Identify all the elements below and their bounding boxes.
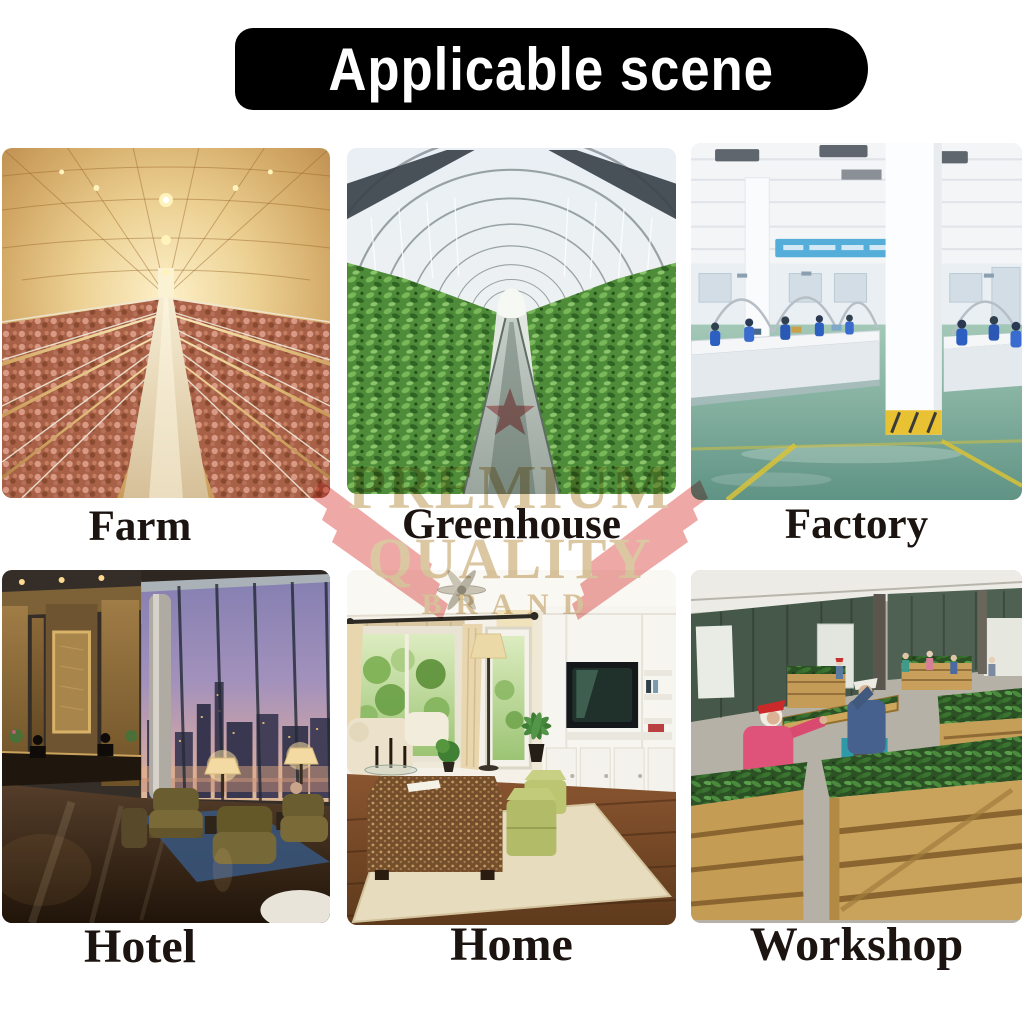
poultry-house-illustration: [2, 148, 330, 498]
workshop-photo: [691, 570, 1022, 923]
scene-label-workshop: Workshop: [691, 920, 1022, 970]
scene-label-greenhouse: Greenhouse: [347, 502, 676, 547]
hotel-lobby-illustration: [2, 570, 330, 923]
workshop-illustration: [691, 570, 1022, 923]
farm-photo: [2, 148, 330, 498]
scene-label-farm: Farm: [0, 504, 304, 549]
scene-label-hotel: Hotel: [0, 922, 304, 972]
factory-photo: [691, 143, 1022, 500]
scene-label-home: Home: [347, 920, 676, 970]
page-title: Applicable scene: [329, 35, 774, 104]
greenhouse-illustration: [347, 148, 676, 494]
scene-label-factory: Factory: [691, 502, 1022, 547]
factory-illustration: [691, 143, 1022, 500]
hotel-photo: [2, 570, 330, 923]
home-photo: [347, 570, 676, 925]
living-room-illustration: [347, 570, 676, 925]
greenhouse-photo: [347, 148, 676, 494]
product-collage-page: Applicable scene: [0, 0, 1024, 1024]
title-banner: Applicable scene: [235, 28, 868, 110]
wicker-ottoman: [367, 776, 503, 880]
